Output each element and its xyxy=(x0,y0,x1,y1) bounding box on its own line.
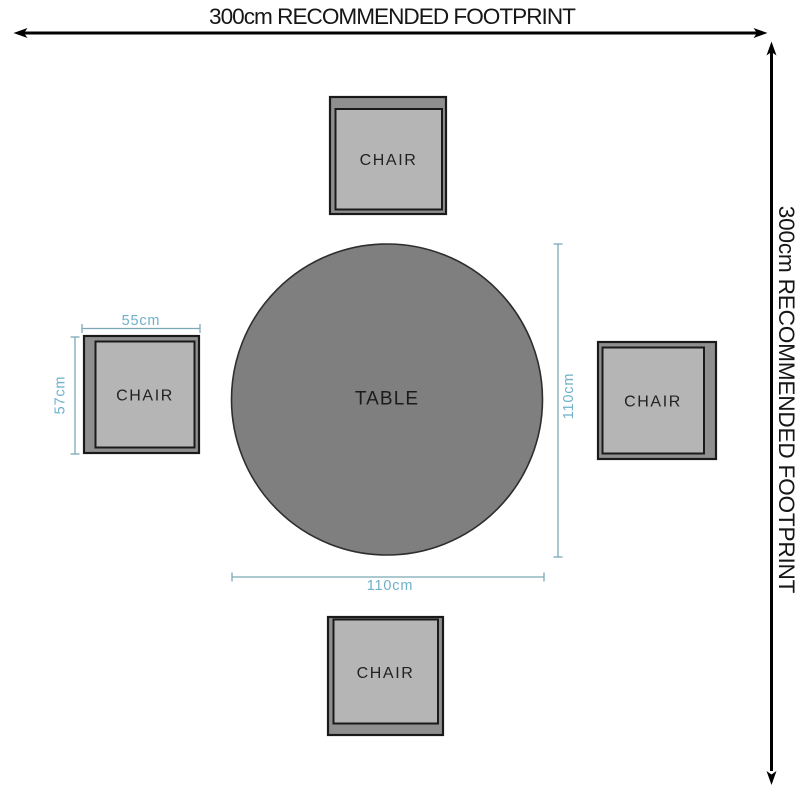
svg-text:300cm RECOMMENDED FOOTPRINT: 300cm RECOMMENDED FOOTPRINT xyxy=(209,4,576,29)
svg-text:CHAIR: CHAIR xyxy=(116,388,174,405)
svg-text:110cm: 110cm xyxy=(367,578,413,594)
svg-text:CHAIR: CHAIR xyxy=(360,152,418,169)
svg-text:CHAIR: CHAIR xyxy=(357,665,415,682)
svg-text:300cm RECOMMENDED FOOTPRINT: 300cm RECOMMENDED FOOTPRINT xyxy=(774,206,799,594)
svg-text:55cm: 55cm xyxy=(122,313,161,329)
svg-text:110cm: 110cm xyxy=(561,373,577,419)
svg-text:57cm: 57cm xyxy=(53,376,69,415)
svg-text:TABLE: TABLE xyxy=(355,389,419,410)
svg-text:CHAIR: CHAIR xyxy=(624,394,682,411)
